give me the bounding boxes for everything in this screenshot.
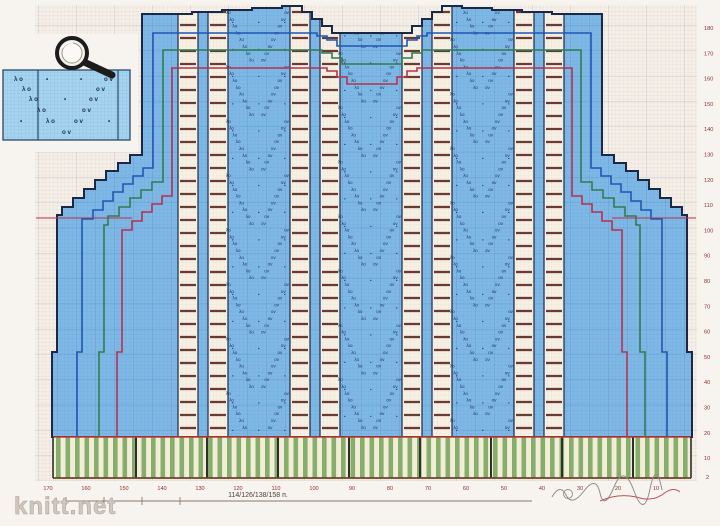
lace-glyph: οv [271, 255, 277, 260]
lace-glyph: λο [236, 139, 241, 144]
lace-glyph: οv [373, 316, 379, 321]
lace-glyph: οv [268, 44, 274, 49]
lace-glyph: λο [351, 187, 356, 192]
ribbing-stripe [598, 437, 603, 478]
lace-glyph: λο [354, 85, 359, 90]
lace-glyph: λο [338, 51, 343, 56]
right-axis-label: 150 [704, 102, 713, 108]
ribbing-stripe [189, 437, 194, 478]
lace-glyph: λο [450, 255, 455, 260]
lace-glyph: οv [268, 316, 274, 321]
ribbing-stripe [427, 437, 432, 478]
lace-glyph: λο [246, 377, 251, 382]
ribbing-stripe [455, 437, 460, 478]
lace-glyph: οv [284, 336, 290, 341]
ribbing-stripe [446, 437, 451, 478]
lace-glyph: οv [495, 119, 501, 124]
ribbing-stripe [256, 437, 261, 478]
lace-glyph: λο [236, 357, 241, 362]
lace-glyph: οv [390, 64, 396, 69]
lace-glyph: οv [373, 425, 379, 430]
lace-glyph: λο [236, 411, 241, 416]
knitting-chart-page: λοοvλοοv•••λοοvλοοvλοοvλοοv•••λοοvλοοvλο… [0, 0, 720, 521]
right-axis-label: 100 [704, 228, 713, 234]
lace-glyph: οv [485, 139, 491, 144]
lace-glyph: οv [508, 364, 514, 369]
lace-glyph: λο [354, 248, 359, 253]
lace-glyph: οv [498, 330, 504, 335]
lace-glyph: οv [274, 194, 280, 199]
legend-symbol: • [20, 118, 22, 125]
lace-glyph: λο [242, 207, 247, 212]
lace-glyph: οv [502, 377, 508, 382]
lace-glyph: οv [396, 377, 402, 382]
ribbing-stripe [151, 437, 156, 478]
right-axis-label: 90 [704, 254, 710, 260]
ribbing-stripe [484, 437, 489, 478]
lace-glyph: λο [345, 228, 350, 233]
lace-glyph: οv [373, 153, 379, 158]
right-axis-label: 60 [704, 330, 710, 336]
lace-glyph: οv [274, 248, 280, 253]
lace-glyph: λο [239, 37, 244, 42]
bottom-axis-label: 100 [309, 486, 318, 492]
lace-glyph: οv [386, 71, 392, 76]
ribbing-stripe [674, 437, 679, 478]
lace-glyph: λο [470, 132, 475, 137]
lace-glyph: λο [249, 112, 254, 117]
lace-glyph: λο [348, 234, 353, 239]
bottom-axis-label: 90 [349, 486, 355, 492]
lace-glyph: οv [383, 241, 389, 246]
lace-glyph: λο [457, 268, 462, 273]
legend-symbol: ο v [96, 86, 105, 93]
lace-glyph: οv [278, 296, 284, 301]
lace-glyph: λο [361, 370, 366, 375]
ribbing-stripe [246, 437, 251, 478]
lace-glyph: λο [246, 323, 251, 328]
lace-glyph: λο [242, 44, 247, 49]
ribbing-band [53, 437, 691, 478]
right-axis-label: 10 [704, 456, 710, 462]
ribbing-stripe [550, 437, 555, 478]
lace-glyph: λο [239, 92, 244, 97]
lace-glyph: οv [502, 214, 508, 219]
lace-glyph: οv [264, 160, 270, 165]
lace-glyph: λο [226, 391, 231, 396]
lace-glyph: λο [473, 248, 478, 253]
bottom-axis-label: 130 [195, 486, 204, 492]
ribbing-stripe [85, 437, 90, 478]
lace-glyph: οv [278, 187, 284, 192]
lace-glyph: οv [271, 200, 277, 205]
lace-glyph: οv [284, 228, 290, 233]
lace-glyph: λο [457, 377, 462, 382]
lace-glyph: οv [492, 180, 498, 185]
lace-glyph: λο [242, 262, 247, 267]
lace-glyph: οv [373, 207, 379, 212]
right-axis-label: 110 [704, 203, 713, 209]
ribbing-stripe [645, 437, 650, 478]
lace-glyph: λο [457, 323, 462, 328]
bottom-axis-label: 80 [387, 486, 393, 492]
lace-glyph: οv [492, 234, 498, 239]
lace-glyph: οv [485, 302, 491, 307]
lace-glyph: λο [354, 302, 359, 307]
ribbing-stripe [294, 437, 299, 478]
lace-glyph: λο [470, 350, 475, 355]
ribbing-stripe [161, 437, 166, 478]
ribbing-stripe [265, 437, 270, 478]
ribbing-stripe [284, 437, 289, 478]
lace-glyph: λο [463, 391, 468, 396]
legend-swatch: λ ο••ο vλ οο vλ ο•ο vλ οο v•λ οο v•ο v [3, 70, 130, 140]
lace-glyph: οv [502, 51, 508, 56]
legend-symbol: • [46, 76, 48, 83]
lace-glyph: λο [239, 146, 244, 151]
lace-glyph: οv [485, 357, 491, 362]
lace-glyph: λο [470, 187, 475, 192]
lace-glyph: λο [233, 350, 238, 355]
ribbing-stripe [123, 437, 128, 478]
lace-glyph: λο [450, 146, 455, 151]
lace-glyph: λο [463, 336, 468, 341]
lace-glyph: οv [508, 309, 514, 314]
legend-symbol: λ ο [14, 76, 23, 83]
lace-glyph: οv [383, 132, 389, 137]
lace-glyph: οv [485, 248, 491, 253]
lace-glyph: λο [354, 194, 359, 199]
lace-glyph: οv [488, 132, 494, 137]
lace-glyph: λο [345, 282, 350, 287]
lace-glyph: οv [502, 160, 508, 165]
lace-glyph: λο [361, 425, 366, 430]
lace-glyph: οv [264, 377, 270, 382]
lace-glyph: λο [457, 160, 462, 165]
lace-glyph: οv [386, 398, 392, 403]
lace-glyph: οv [261, 330, 267, 335]
ribbing-stripe [579, 437, 584, 478]
ribbing-stripe [474, 437, 479, 478]
ribbing-stripe [56, 437, 61, 478]
lace-glyph: λο [246, 268, 251, 273]
lace-glyph: οv [502, 105, 508, 110]
lace-glyph: λο [450, 309, 455, 314]
lace-glyph: οv [274, 411, 280, 416]
lace-glyph: λο [358, 37, 363, 42]
legend-symbol: • [108, 118, 110, 125]
lace-glyph: λο [361, 207, 366, 212]
right-axis-label: 170 [704, 51, 713, 57]
lace-glyph: λο [463, 228, 468, 233]
lace-glyph: οv [502, 268, 508, 273]
bottom-axis-labels: 1701601501401301201101009080706050403020… [43, 486, 659, 492]
lace-glyph: οv [261, 166, 267, 171]
right-axis-label: 130 [704, 153, 713, 159]
lace-glyph: οv [264, 105, 270, 110]
right-axis-label: 140 [704, 127, 713, 133]
lace-glyph: λο [354, 357, 359, 362]
lace-glyph: λο [351, 78, 356, 83]
lace-glyph: οv [271, 364, 277, 369]
right-axis-label: 30 [704, 406, 710, 412]
lace-glyph: λο [246, 214, 251, 219]
watermark-text: knitt.net [14, 493, 116, 520]
ribbing-stripe [683, 437, 688, 478]
lace-glyph: λο [358, 255, 363, 260]
lace-glyph: λο [246, 51, 251, 56]
lace-glyph: οv [498, 221, 504, 226]
lace-glyph: λο [345, 336, 350, 341]
lace-glyph: οv [492, 343, 498, 348]
lace-glyph: οv [492, 289, 498, 294]
lace-glyph: οv [261, 275, 267, 280]
ribbing-stripe [398, 437, 403, 478]
lace-glyph: λο [457, 51, 462, 56]
lace-glyph: οv [268, 153, 274, 158]
lace-glyph: λο [460, 384, 465, 389]
lace-glyph: οv [495, 228, 501, 233]
ribbing-stripe [379, 437, 384, 478]
bottom-axis-label: 160 [81, 486, 90, 492]
ribbing-stripe [351, 437, 356, 478]
lace-glyph: λο [450, 418, 455, 423]
lace-glyph: λο [249, 58, 254, 63]
lace-glyph: οv [261, 384, 267, 389]
ribbing-stripe [664, 437, 669, 478]
lace-glyph: λο [466, 398, 471, 403]
right-axis-label: 180 [704, 26, 713, 32]
lace-glyph: οv [278, 241, 284, 246]
ribbing-stripe [104, 437, 109, 478]
lace-glyph: λο [358, 418, 363, 423]
lace-glyph: οv [380, 194, 386, 199]
lace-glyph: λο [466, 126, 471, 131]
lace-glyph: οv [284, 119, 290, 124]
lace-glyph: λο [351, 404, 356, 409]
ribbing-stripe [303, 437, 308, 478]
lace-glyph: οv [492, 71, 498, 76]
lace-glyph: οv [386, 234, 392, 239]
lace-glyph: οv [380, 139, 386, 144]
lace-glyph: οv [390, 336, 396, 341]
lace-glyph: λο [473, 139, 478, 144]
lace-glyph: λο [233, 132, 238, 137]
lace-glyph: λο [351, 241, 356, 246]
lace-glyph: οv [386, 126, 392, 131]
lace-glyph: οv [495, 391, 501, 396]
ribbing-stripe [408, 437, 413, 478]
ribbing-stripe [626, 437, 631, 478]
lace-glyph: οv [492, 126, 498, 131]
ribbing-stripe [541, 437, 546, 478]
ribbing-stripe [227, 437, 232, 478]
lace-glyph: οv [498, 112, 504, 117]
lace-glyph: οv [383, 78, 389, 83]
ribbing-stripe [332, 437, 337, 478]
lace-glyph: λο [233, 187, 238, 192]
ribbing-stripe [199, 437, 204, 478]
lace-glyph: λο [233, 404, 238, 409]
right-axis-label: 120 [704, 178, 713, 184]
lace-glyph: οv [268, 370, 274, 375]
ribbing-stripe [436, 437, 441, 478]
legend-symbol: λ ο [37, 107, 46, 114]
lace-glyph: οv [284, 282, 290, 287]
lace-glyph: οv [373, 98, 379, 103]
lace-glyph: λο [242, 370, 247, 375]
ribbing-stripe [655, 437, 660, 478]
lace-glyph: λο [348, 398, 353, 403]
lace-glyph: λο [460, 112, 465, 117]
lace-glyph: λο [463, 173, 468, 178]
lace-glyph: οv [373, 262, 379, 267]
lace-glyph: οv [498, 275, 504, 280]
legend-symbol: λ ο [29, 96, 38, 103]
lace-glyph: λο [354, 411, 359, 416]
legend-symbol: ο v [89, 96, 98, 103]
lace-glyph: οv [396, 51, 402, 56]
bottom-axis-label: 40 [539, 486, 545, 492]
lace-glyph: λο [450, 37, 455, 42]
lace-glyph: οv [488, 78, 494, 83]
lace-glyph: οv [264, 323, 270, 328]
lace-glyph: λο [358, 309, 363, 314]
lace-glyph: λο [466, 289, 471, 294]
lace-glyph: λο [361, 262, 366, 267]
lace-glyph: οv [278, 350, 284, 355]
lace-glyph: λο [233, 78, 238, 83]
ribbing-stripe [588, 437, 593, 478]
lace-glyph: λο [470, 241, 475, 246]
lace-glyph: λο [358, 200, 363, 205]
legend-symbol: ο v [62, 129, 71, 136]
lace-glyph: λο [249, 221, 254, 226]
lace-glyph: λο [460, 275, 465, 280]
lace-glyph: λο [239, 418, 244, 423]
right-axis-label: 80 [704, 279, 710, 285]
lace-glyph: λο [358, 364, 363, 369]
lace-glyph: λο [354, 139, 359, 144]
ribbing-stripe [66, 437, 71, 478]
lace-glyph: λο [361, 153, 366, 158]
lace-glyph: λο [351, 296, 356, 301]
lace-glyph: οv [390, 173, 396, 178]
lace-glyph: οv [508, 255, 514, 260]
lace-glyph: λο [450, 92, 455, 97]
lace-glyph: λο [345, 64, 350, 69]
lace-glyph: λο [457, 214, 462, 219]
lace-glyph: λο [470, 296, 475, 301]
lace-glyph: οv [278, 132, 284, 137]
lace-glyph: οv [488, 241, 494, 246]
lace-glyph: οv [495, 282, 501, 287]
right-axis-label: 40 [704, 380, 710, 386]
lace-glyph: οv [485, 85, 491, 90]
lace-glyph: λο [249, 330, 254, 335]
bottom-axis-label: 70 [425, 486, 431, 492]
lace-glyph: οv [271, 37, 277, 42]
lace-glyph: οv [498, 58, 504, 63]
lace-glyph: οv [485, 194, 491, 199]
bottom-axis-label: 30 [577, 486, 583, 492]
lace-glyph: οv [508, 200, 514, 205]
lace-glyph: λο [338, 323, 343, 328]
lace-glyph: οv [386, 289, 392, 294]
lace-glyph: λο [470, 404, 475, 409]
right-axis-label: 20 [704, 431, 710, 437]
ribbing-stripe [607, 437, 612, 478]
lace-glyph: λο [463, 282, 468, 287]
ribbing-stripe [208, 437, 213, 478]
lace-glyph: λο [351, 132, 356, 137]
lace-glyph: λο [242, 316, 247, 321]
ribbing-stripe [569, 437, 574, 478]
lace-glyph: οv [508, 37, 514, 42]
lace-glyph: λο [463, 10, 468, 15]
lace-glyph: οv [492, 398, 498, 403]
lace-glyph: οv [380, 411, 386, 416]
lace-glyph: λο [466, 180, 471, 185]
lace-glyph: οv [376, 200, 382, 205]
lace-glyph: λο [338, 214, 343, 219]
lace-glyph: λο [348, 343, 353, 348]
lace-glyph: οv [396, 105, 402, 110]
right-axis-label: 2 [706, 475, 709, 481]
lace-glyph: λο [246, 160, 251, 165]
legend-symbol: ο v [82, 107, 91, 114]
lace-glyph: λο [361, 98, 366, 103]
lace-glyph: οv [492, 17, 498, 22]
lace-glyph: οv [278, 78, 284, 83]
stitch-count-annotation: 114/126/138/158 п. [228, 492, 288, 499]
lace-glyph: λο [236, 194, 241, 199]
lace-glyph: λο [358, 92, 363, 97]
lace-glyph: λο [246, 105, 251, 110]
lace-glyph: οv [488, 187, 494, 192]
ribbing-stripe [617, 437, 622, 478]
lace-glyph: οv [488, 24, 494, 29]
lace-glyph: οv [261, 112, 267, 117]
ribbing-stripe [370, 437, 375, 478]
lace-glyph: οv [390, 228, 396, 233]
lace-glyph: οv [268, 425, 274, 430]
ribbing-stripe [113, 437, 118, 478]
lace-glyph: οv [488, 350, 494, 355]
lace-glyph: οv [390, 391, 396, 396]
lace-glyph: οv [495, 336, 501, 341]
lace-glyph: οv [274, 139, 280, 144]
lace-glyph: οv [498, 166, 504, 171]
legend-symbol: λ ο [22, 86, 31, 93]
lace-glyph: οv [376, 146, 382, 151]
lace-glyph: λο [473, 302, 478, 307]
lace-glyph: λο [249, 275, 254, 280]
lace-glyph: οv [383, 404, 389, 409]
knitting-chart-canvas: λοοvλοοv•••λοοvλοοvλοοvλοοv•••λοοvλοοvλο… [0, 0, 720, 521]
bottom-axis-label: 140 [157, 486, 166, 492]
lace-glyph: λο [249, 384, 254, 389]
lace-glyph: οv [502, 323, 508, 328]
right-axis-label: 70 [704, 304, 710, 310]
lace-glyph: λο [239, 364, 244, 369]
lace-glyph: λο [457, 105, 462, 110]
bottom-axis-label: 50 [501, 486, 507, 492]
ribbing-stripe [341, 437, 346, 478]
lace-glyph: λο [226, 228, 231, 233]
lace-glyph: λο [450, 364, 455, 369]
lace-glyph: οv [284, 173, 290, 178]
